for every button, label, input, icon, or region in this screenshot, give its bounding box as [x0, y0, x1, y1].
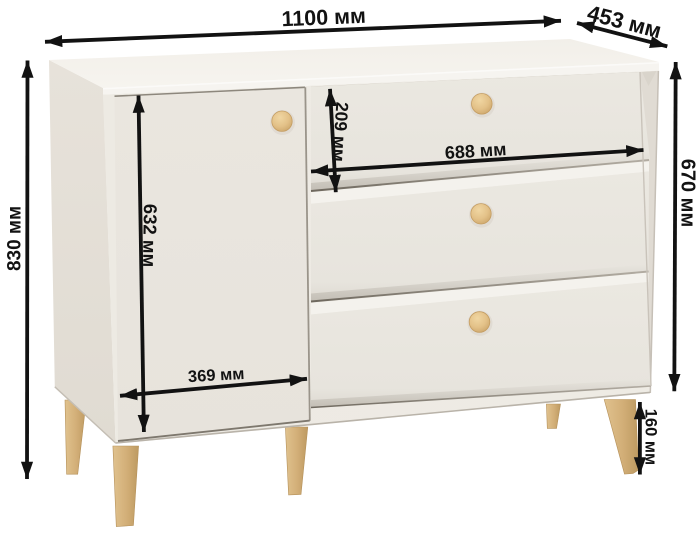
svg-text:688 мм: 688 мм [444, 139, 507, 163]
svg-text:160 мм: 160 мм [642, 409, 660, 466]
svg-text:830 мм: 830 мм [5, 206, 26, 271]
svg-text:209 мм: 209 мм [329, 101, 353, 162]
svg-text:670 мм: 670 мм [677, 159, 699, 228]
svg-text:369 мм: 369 мм [187, 365, 244, 386]
svg-text:632 мм: 632 мм [139, 204, 161, 268]
svg-text:1100 мм: 1100 мм [281, 4, 366, 32]
